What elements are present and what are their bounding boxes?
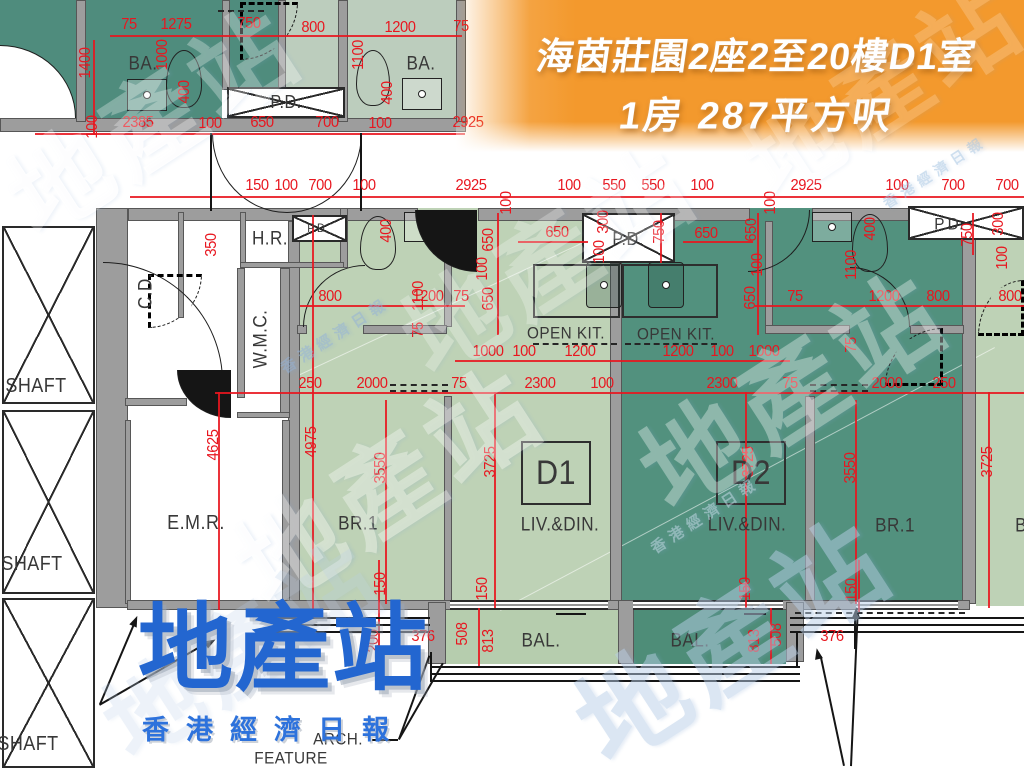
dimension-line: [988, 392, 990, 608]
site-logo: 地產站 香港經濟日報: [138, 596, 438, 747]
wall: [237, 412, 290, 418]
dimension-label: 700: [315, 115, 338, 131]
dimension-label: 650: [744, 218, 760, 241]
dimension-label: 75: [121, 17, 136, 33]
wall: [240, 212, 246, 266]
room-label: BA.: [407, 55, 436, 74]
window: [450, 600, 608, 610]
annotation-line: [360, 133, 362, 211]
dimension-label: 813: [481, 629, 497, 652]
dimension-label: 300: [991, 212, 1007, 235]
dimension-label: 100: [274, 178, 297, 194]
dimension-label: 350: [204, 233, 220, 256]
dimension-label: 400: [379, 219, 395, 242]
wall: [240, 262, 344, 268]
room-label: SHAFT: [0, 734, 59, 754]
room-label: P.D.: [934, 216, 964, 233]
dimension-label: 700: [995, 178, 1018, 194]
floor-plan: 7512757508001200751400100040011004001002…: [0, 0, 1024, 768]
dimension-label: 800: [301, 20, 324, 36]
wall: [962, 221, 976, 604]
dimension-label: 100: [352, 178, 375, 194]
dimension-label: 800: [998, 289, 1021, 305]
fixture-dot: [662, 281, 670, 289]
room-label: BR.1: [875, 517, 915, 536]
dimension-label: 3725: [980, 447, 996, 478]
logo-subtitle: 香港經濟日報: [138, 708, 438, 747]
dimension-label: 800: [318, 289, 341, 305]
dimension-label: 150: [475, 577, 491, 600]
dimension-label: 400: [380, 81, 396, 104]
fixture-dot: [418, 90, 426, 98]
logo-title: 地產站: [138, 596, 438, 702]
dimension-label: 4625: [206, 430, 222, 461]
dimension-label: 3550: [843, 453, 859, 484]
room-label: P.D.: [307, 222, 328, 234]
dimension-label: 1200: [385, 20, 416, 36]
basin-fixture: [812, 212, 852, 242]
room-label: W.M.C.: [252, 310, 271, 369]
annotation-line: [556, 613, 586, 615]
wall: [237, 268, 245, 398]
dimension-label: 1100: [351, 40, 367, 70]
annotation-line: [820, 656, 845, 766]
dimension-label: 100: [368, 116, 391, 132]
room-label: FEATURE: [254, 750, 327, 767]
dimension-label: 700: [941, 178, 964, 194]
dimension-label: 1200: [663, 344, 694, 360]
dimension-label: 2925: [456, 178, 487, 194]
dimension-label: 700: [308, 178, 331, 194]
room-label: BAL.: [522, 632, 561, 651]
room-label: SHAFT: [5, 376, 66, 396]
door-arc: [177, 370, 231, 418]
dimension-label: 650: [743, 286, 759, 309]
wall: [125, 420, 131, 604]
room-label: LIV.&DIN.: [521, 516, 600, 535]
room-label: BR.1: [1015, 517, 1024, 536]
room-label: SHAFT: [1, 554, 62, 574]
dimension-label: 150: [245, 178, 268, 194]
dimension-label: 1200: [565, 344, 596, 360]
room-label: H.R.: [252, 230, 288, 249]
dimension-label: 100: [590, 376, 613, 392]
room-label: C.D.: [137, 273, 156, 309]
dimension-label: 250: [298, 376, 321, 392]
basin-fixture: [402, 78, 442, 110]
dimension-label: 2300: [525, 376, 556, 392]
fixture-dot: [828, 223, 836, 231]
dimension-label: 100: [750, 253, 766, 276]
dimension-label: 100: [995, 246, 1011, 269]
room-label: OPEN KIT.: [637, 326, 715, 343]
wall: [125, 398, 187, 406]
dimension-label: 508: [455, 622, 471, 645]
